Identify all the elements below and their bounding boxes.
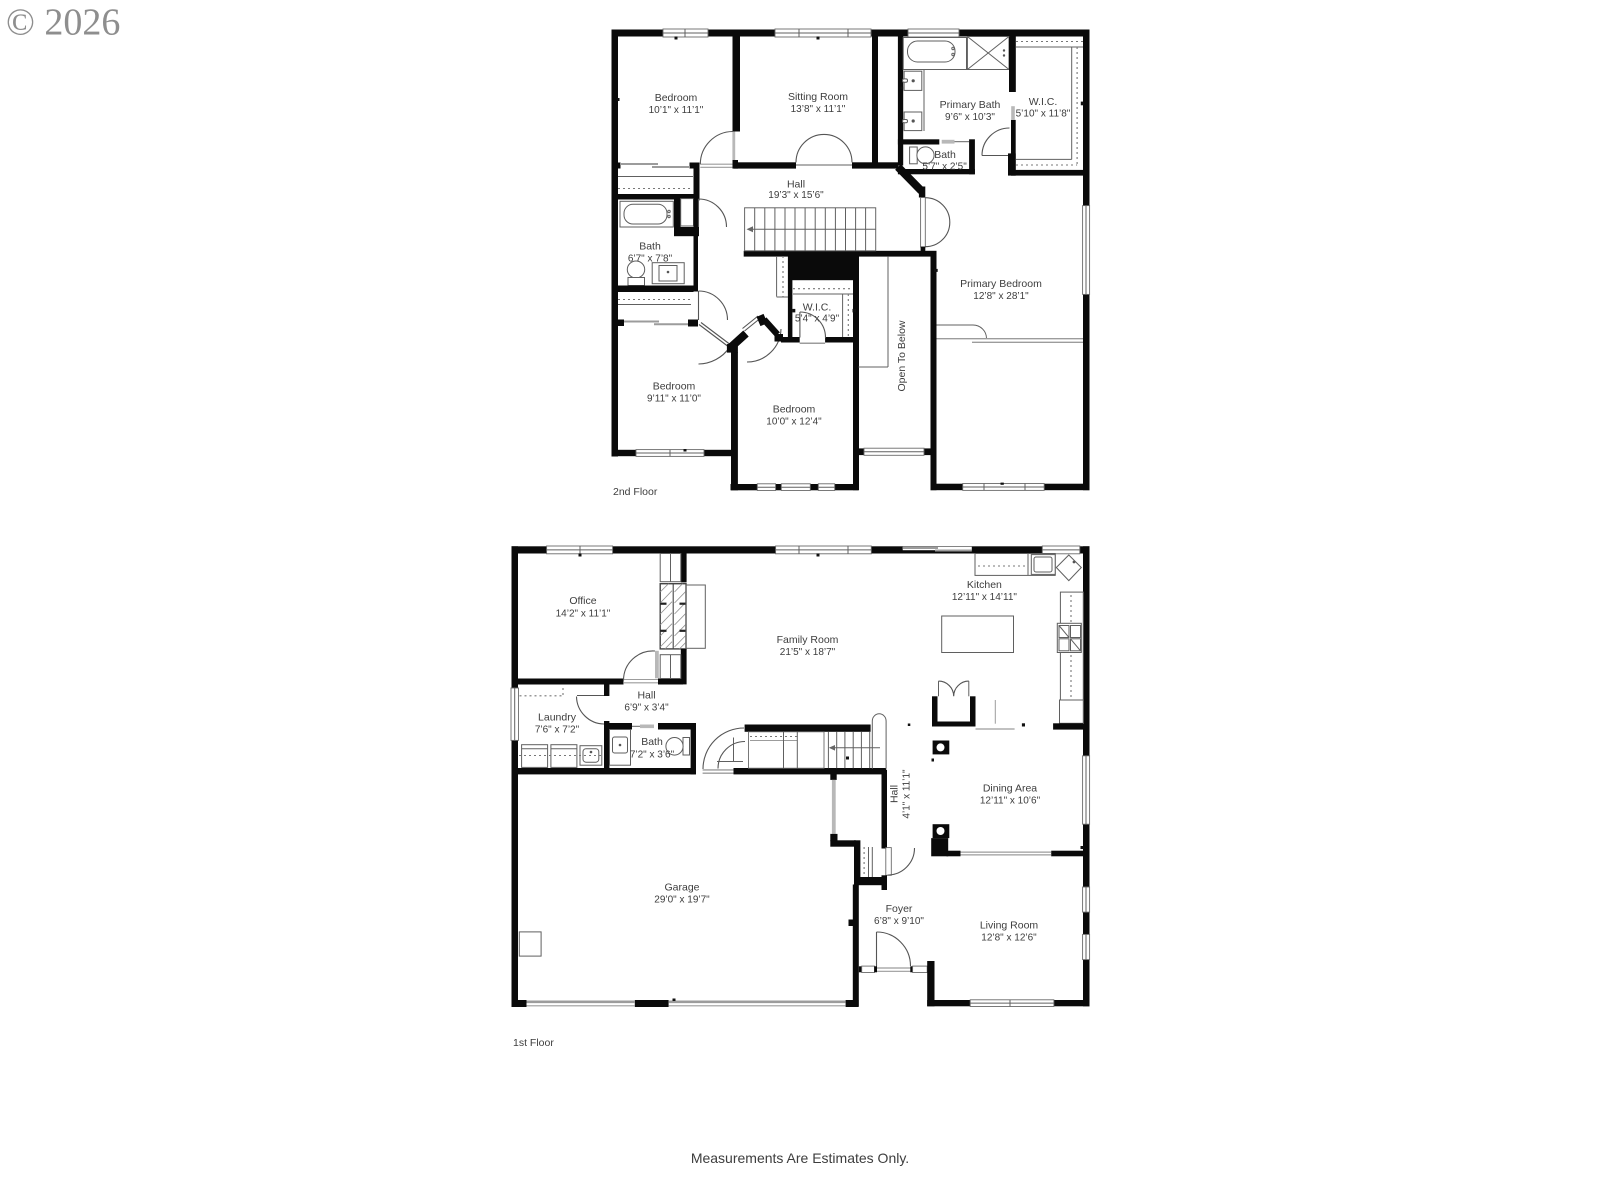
svg-text:12’8" x 12’6": 12’8" x 12’6" (981, 933, 1037, 944)
svg-text:Primary Bedroom: Primary Bedroom (960, 278, 1042, 290)
svg-text:10’1" x 11’1": 10’1" x 11’1" (649, 105, 704, 116)
svg-text:Family Room: Family Room (777, 634, 839, 646)
svg-text:12’8" x 28’1": 12’8" x 28’1" (973, 291, 1029, 302)
svg-text:1st Floor: 1st Floor (513, 1037, 554, 1049)
svg-text:4’1" x 11’1": 4’1" x 11’1" (902, 769, 913, 819)
svg-text:13’8" x 11’1": 13’8" x 11’1" (791, 104, 846, 115)
svg-text:6’9" x 3’4": 6’9" x 3’4" (624, 703, 669, 714)
svg-text:© 2026: © 2026 (6, 2, 120, 44)
svg-text:Laundry: Laundry (538, 712, 577, 724)
svg-text:29’0" x 19’7": 29’0" x 19’7" (654, 895, 710, 906)
svg-text:Hall: Hall (637, 690, 655, 702)
svg-text:Dining Area: Dining Area (983, 783, 1037, 795)
svg-text:W.I.C.: W.I.C. (1029, 96, 1058, 108)
svg-text:Garage: Garage (664, 882, 699, 894)
svg-text:Bath: Bath (934, 149, 956, 161)
svg-text:Primary Bath: Primary Bath (940, 99, 1001, 111)
svg-text:Bath: Bath (639, 241, 661, 253)
svg-text:Foyer: Foyer (886, 903, 913, 915)
svg-text:14’2" x 11’1": 14’2" x 11’1" (556, 609, 611, 620)
svg-text:5’4" x 4’9": 5’4" x 4’9" (795, 314, 840, 325)
svg-text:Hall: Hall (889, 785, 901, 803)
svg-text:Hall: Hall (787, 179, 805, 191)
svg-text:Kitchen: Kitchen (967, 579, 1002, 591)
svg-text:Measurements Are Estimates Onl: Measurements Are Estimates Only. (691, 1150, 909, 1166)
svg-text:Office: Office (569, 595, 596, 607)
svg-text:Bedroom: Bedroom (773, 404, 816, 416)
svg-text:Bath: Bath (641, 736, 663, 748)
svg-text:9’6" x 10’3": 9’6" x 10’3" (945, 112, 995, 123)
svg-text:Bedroom: Bedroom (653, 381, 696, 393)
svg-text:7’6" x 7’2": 7’6" x 7’2" (535, 725, 580, 736)
svg-text:6’7" x 7’8": 6’7" x 7’8" (628, 254, 673, 265)
svg-text:5’10" x 11’8": 5’10" x 11’8" (1016, 109, 1071, 120)
svg-text:9’11" x 11’0": 9’11" x 11’0" (647, 394, 701, 405)
svg-text:Bedroom: Bedroom (655, 92, 698, 104)
svg-text:5’7" x 2’5": 5’7" x 2’5" (922, 162, 967, 173)
svg-text:12’11" x 14’11": 12’11" x 14’11" (952, 592, 1018, 603)
svg-text:Open To Below: Open To Below (896, 320, 908, 391)
svg-text:Sitting Room: Sitting Room (788, 91, 848, 103)
svg-text:12’11" x 10’6": 12’11" x 10’6" (980, 796, 1041, 807)
svg-text:21’5" x 18’7": 21’5" x 18’7" (780, 647, 836, 658)
svg-text:10’0" x 12’4": 10’0" x 12’4" (766, 417, 822, 428)
svg-text:7’2" x 3’6": 7’2" x 3’6" (630, 750, 675, 761)
svg-text:W.I.C.: W.I.C. (803, 302, 832, 314)
svg-text:6’8" x 9’10": 6’8" x 9’10" (874, 916, 924, 927)
svg-text:Living Room: Living Room (980, 920, 1039, 932)
svg-text:2nd Floor: 2nd Floor (613, 486, 658, 498)
svg-text:19’3" x 15’6": 19’3" x 15’6" (768, 190, 824, 201)
